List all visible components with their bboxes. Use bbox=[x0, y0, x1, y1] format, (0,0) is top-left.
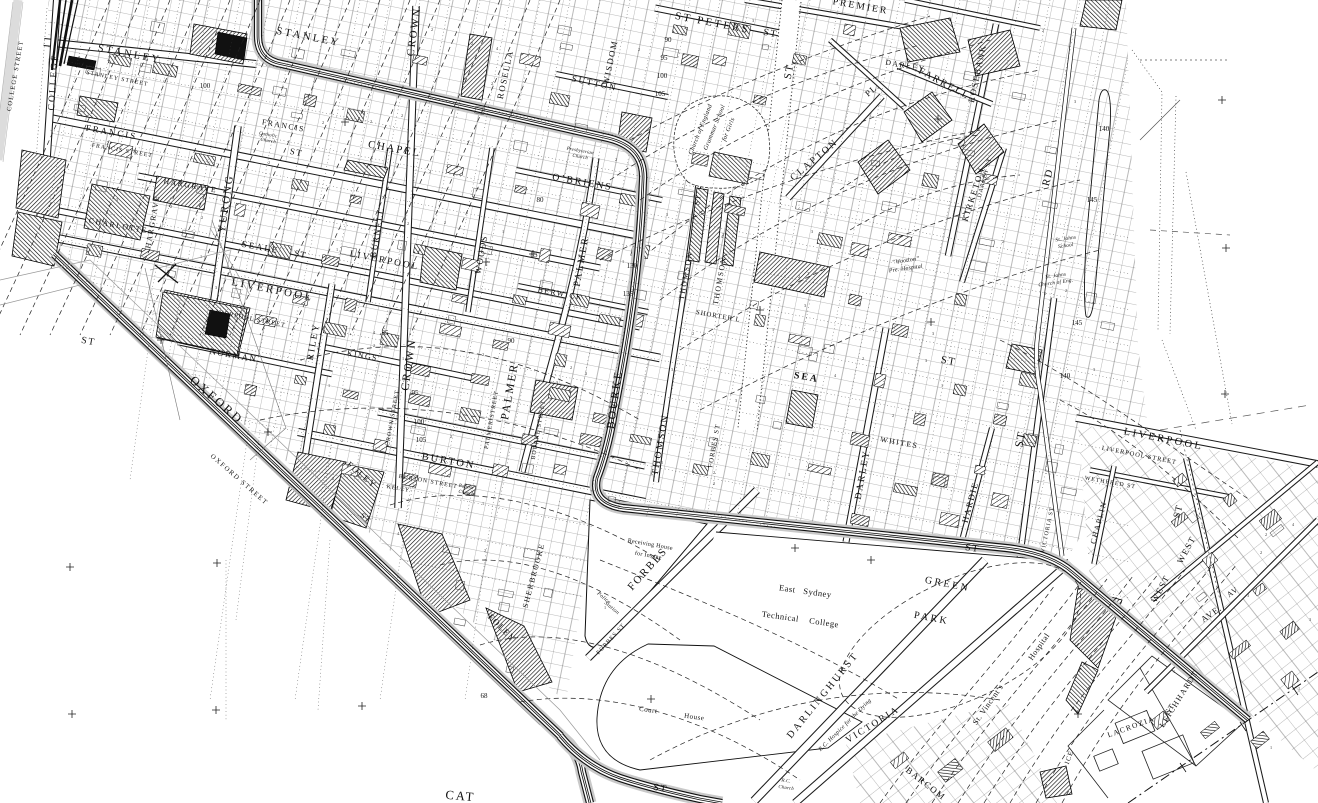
svg-text:1: 1 bbox=[155, 17, 157, 22]
svg-text:1: 1 bbox=[622, 259, 624, 264]
svg-text:95: 95 bbox=[661, 54, 669, 62]
svg-text:140: 140 bbox=[1060, 372, 1071, 380]
svg-text:2: 2 bbox=[798, 274, 800, 279]
svg-text:3: 3 bbox=[585, 371, 587, 376]
svg-text:140: 140 bbox=[1099, 125, 1110, 133]
svg-text:1: 1 bbox=[1173, 669, 1175, 674]
svg-text:2: 2 bbox=[370, 119, 372, 124]
svg-text:1: 1 bbox=[633, 291, 635, 296]
svg-text:95: 95 bbox=[412, 389, 420, 397]
svg-text:2: 2 bbox=[570, 365, 572, 370]
svg-text:2: 2 bbox=[615, 157, 617, 162]
svg-text:2: 2 bbox=[407, 221, 409, 226]
svg-text:2: 2 bbox=[1065, 288, 1067, 293]
svg-text:3: 3 bbox=[671, 367, 673, 372]
svg-text:105: 105 bbox=[655, 90, 666, 98]
svg-text:1: 1 bbox=[1270, 745, 1272, 750]
svg-text:2: 2 bbox=[322, 120, 324, 125]
svg-text:1: 1 bbox=[200, 254, 202, 259]
svg-text:3: 3 bbox=[1309, 617, 1311, 622]
svg-text:3: 3 bbox=[925, 358, 927, 363]
svg-text:1: 1 bbox=[336, 247, 338, 252]
svg-text:3: 3 bbox=[932, 331, 934, 336]
svg-text:3: 3 bbox=[722, 232, 724, 237]
svg-text:105: 105 bbox=[416, 436, 427, 444]
svg-text:ST: ST bbox=[964, 542, 980, 555]
svg-text:2: 2 bbox=[401, 113, 403, 118]
svg-text:3: 3 bbox=[804, 303, 806, 308]
svg-text:1: 1 bbox=[1298, 686, 1300, 691]
svg-text:2: 2 bbox=[482, 352, 484, 357]
svg-text:2: 2 bbox=[713, 470, 715, 475]
svg-text:2: 2 bbox=[201, 215, 203, 220]
svg-text:1: 1 bbox=[788, 472, 790, 477]
svg-text:CAT: CAT bbox=[445, 788, 476, 803]
svg-text:2: 2 bbox=[713, 481, 715, 486]
svg-text:3: 3 bbox=[752, 18, 754, 23]
svg-text:145: 145 bbox=[1072, 319, 1083, 327]
svg-text:2: 2 bbox=[862, 356, 864, 361]
svg-text:135: 135 bbox=[623, 290, 634, 298]
svg-text:3: 3 bbox=[116, 197, 118, 202]
svg-text:2: 2 bbox=[268, 160, 270, 165]
svg-text:3: 3 bbox=[1093, 367, 1095, 372]
svg-text:3: 3 bbox=[556, 380, 558, 385]
svg-text:3: 3 bbox=[666, 212, 668, 217]
svg-text:2: 2 bbox=[87, 112, 89, 117]
svg-text:1: 1 bbox=[772, 327, 774, 332]
svg-text:2: 2 bbox=[332, 476, 334, 481]
svg-text:2: 2 bbox=[431, 27, 433, 32]
svg-text:100: 100 bbox=[200, 82, 211, 90]
svg-text:2: 2 bbox=[1037, 479, 1039, 484]
svg-text:2: 2 bbox=[847, 272, 849, 277]
svg-text:2: 2 bbox=[471, 41, 473, 46]
svg-text:2: 2 bbox=[1260, 550, 1262, 555]
svg-text:2: 2 bbox=[1002, 239, 1004, 244]
svg-text:1: 1 bbox=[328, 383, 330, 388]
svg-text:2: 2 bbox=[638, 47, 640, 52]
svg-text:100: 100 bbox=[414, 418, 425, 426]
svg-text:2: 2 bbox=[892, 413, 894, 418]
svg-text:130: 130 bbox=[627, 262, 638, 270]
svg-text:80: 80 bbox=[537, 196, 545, 204]
svg-text:2: 2 bbox=[342, 106, 344, 111]
svg-text:2: 2 bbox=[1044, 291, 1046, 296]
svg-text:85: 85 bbox=[531, 251, 539, 259]
svg-text:100: 100 bbox=[657, 72, 668, 80]
svg-text:3: 3 bbox=[1247, 593, 1249, 598]
svg-text:ST: ST bbox=[294, 248, 308, 260]
svg-text:2: 2 bbox=[807, 271, 809, 276]
svg-text:68: 68 bbox=[481, 692, 489, 700]
svg-text:2: 2 bbox=[137, 163, 139, 168]
svg-text:3: 3 bbox=[811, 229, 813, 234]
svg-text:2: 2 bbox=[1265, 532, 1267, 537]
svg-text:3: 3 bbox=[215, 285, 217, 290]
svg-text:ST: ST bbox=[692, 193, 703, 206]
svg-text:2: 2 bbox=[450, 434, 452, 439]
svg-text:1: 1 bbox=[368, 40, 370, 45]
svg-text:1: 1 bbox=[502, 229, 504, 234]
svg-text:85: 85 bbox=[382, 329, 390, 337]
svg-text:90: 90 bbox=[508, 337, 516, 345]
svg-text:2: 2 bbox=[444, 220, 446, 225]
svg-text:2: 2 bbox=[429, 169, 431, 174]
svg-text:3: 3 bbox=[735, 398, 737, 403]
svg-text:3: 3 bbox=[1074, 99, 1076, 104]
svg-text:2: 2 bbox=[692, 331, 694, 336]
svg-text:145: 145 bbox=[1087, 196, 1098, 204]
svg-text:90: 90 bbox=[665, 36, 673, 44]
svg-text:2: 2 bbox=[373, 343, 375, 348]
svg-text:2: 2 bbox=[484, 548, 486, 553]
svg-text:2: 2 bbox=[341, 438, 343, 443]
svg-text:1: 1 bbox=[482, 501, 484, 506]
svg-text:3: 3 bbox=[836, 81, 838, 86]
